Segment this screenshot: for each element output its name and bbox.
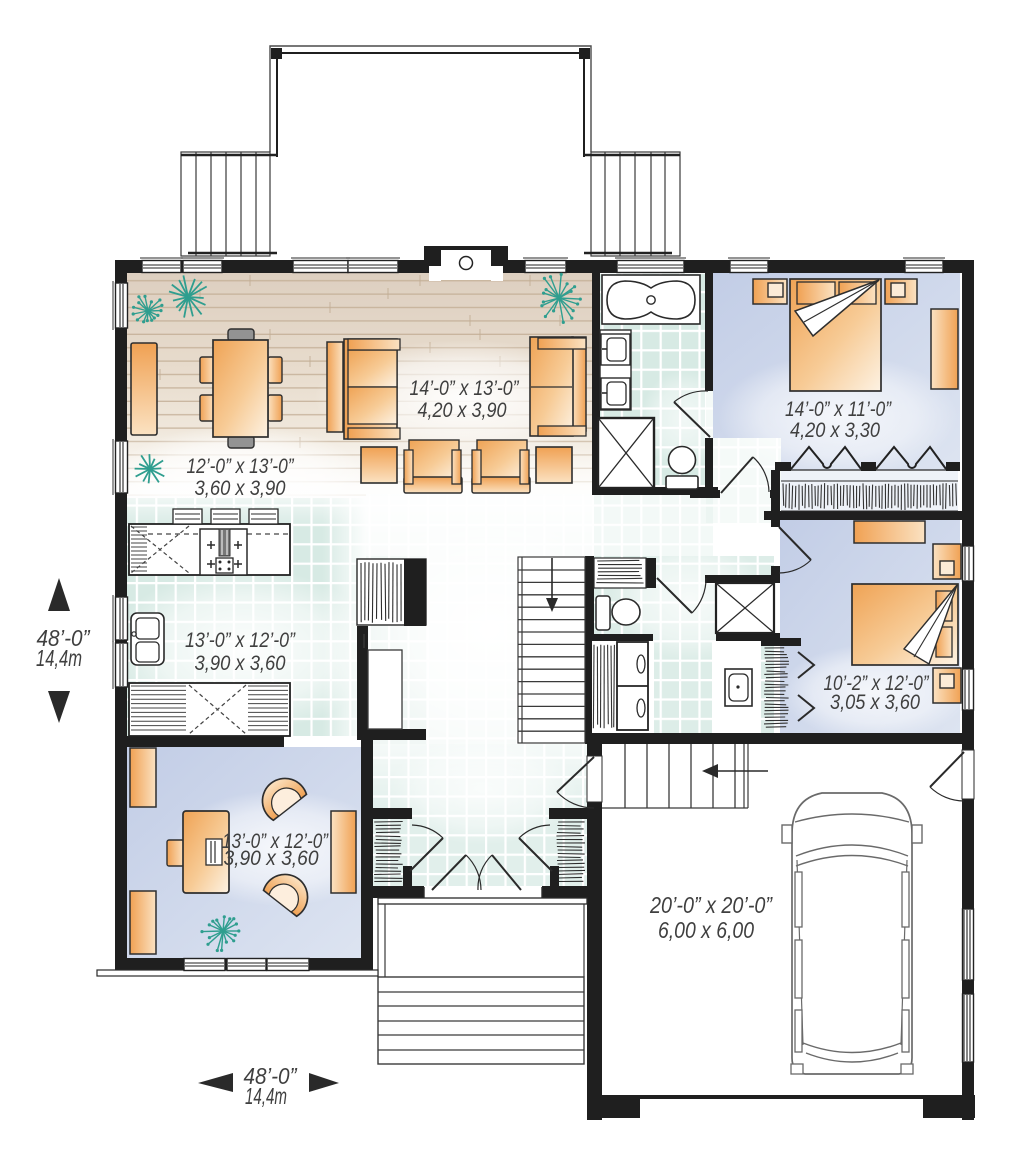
svg-text:6,00 x 6,00: 6,00 x 6,00 [658, 917, 754, 943]
svg-text:12’-0” x 13’-0”: 12’-0” x 13’-0” [187, 455, 295, 478]
svg-text:3,90 x 3,60: 3,90 x 3,60 [195, 652, 286, 675]
svg-text:20’-0” x 20’-0”: 20’-0” x 20’-0” [649, 892, 773, 918]
svg-text:13’-0” x 12’-0”: 13’-0” x 12’-0” [185, 629, 296, 652]
svg-text:14’-0” x 11’-0”: 14’-0” x 11’-0” [785, 398, 892, 421]
svg-text:3,90 x 3,60: 3,90 x 3,60 [224, 847, 319, 870]
svg-text:3,05 x 3,60: 3,05 x 3,60 [830, 691, 920, 714]
svg-text:14’-0” x 13’-0”: 14’-0” x 13’-0” [410, 377, 520, 400]
svg-text:4,20 x 3,90: 4,20 x 3,90 [418, 399, 507, 422]
svg-text:14,4m: 14,4m [36, 645, 82, 671]
svg-text:14,4m: 14,4m [245, 1083, 287, 1109]
svg-text:4,20 x 3,30: 4,20 x 3,30 [790, 419, 880, 442]
svg-text:3,60 x 3,90: 3,60 x 3,90 [195, 477, 286, 500]
